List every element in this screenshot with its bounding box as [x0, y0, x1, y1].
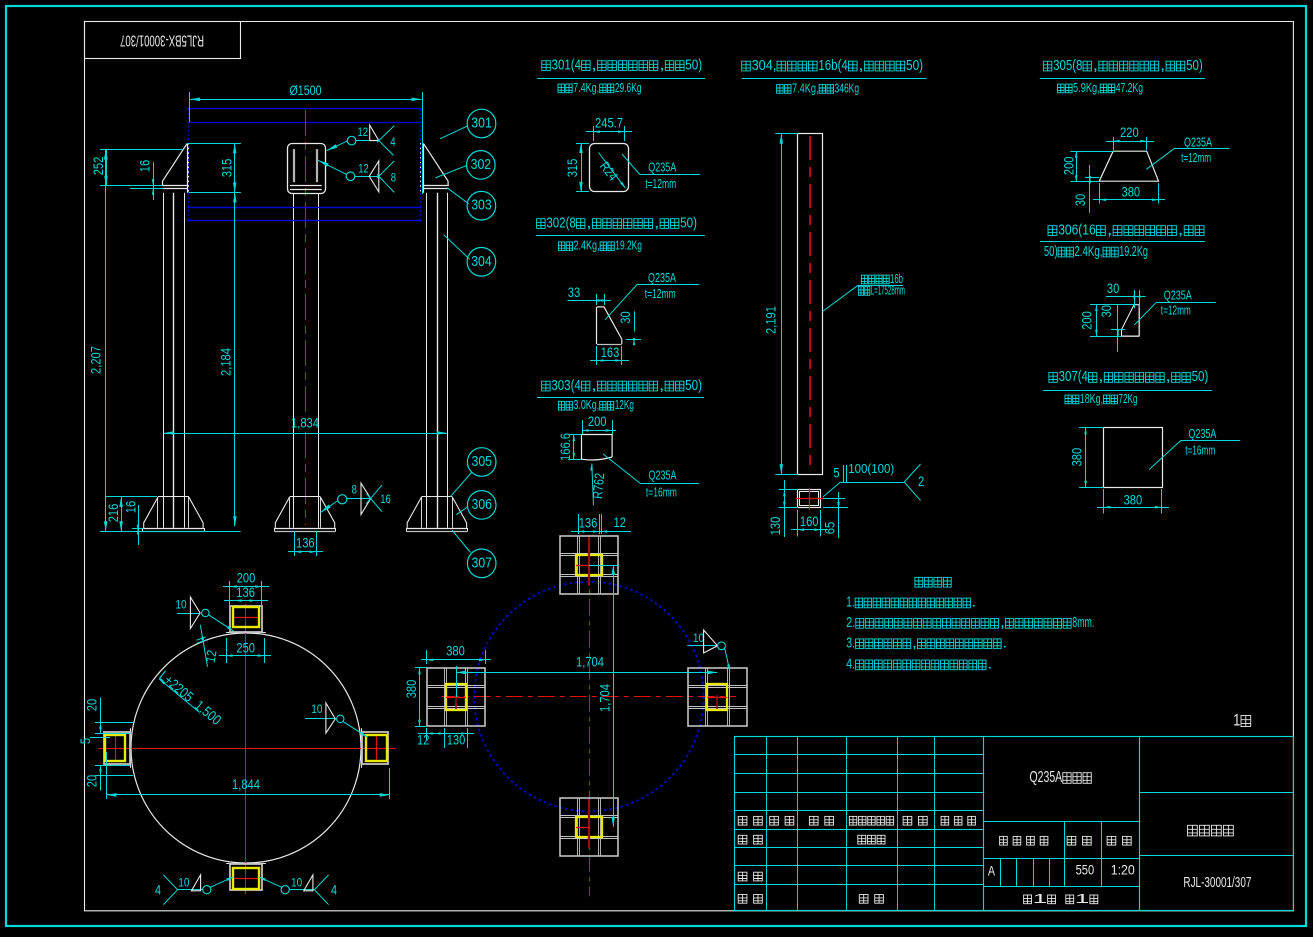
svg-text:t=16mm: t=16mm: [646, 484, 677, 499]
svg-text:4: 4: [390, 136, 396, 149]
svg-text:1,834: 1,834: [291, 416, 319, 431]
svg-text:100(100): 100(100): [848, 461, 894, 476]
svg-text:.: .: [1002, 636, 1007, 652]
svg-text:8: 8: [391, 172, 396, 185]
svg-text:304: 304: [471, 253, 492, 270]
svg-text:10: 10: [178, 876, 189, 890]
svg-text:Q235A: Q235A: [648, 270, 676, 285]
svg-text:12: 12: [358, 126, 369, 139]
svg-text:200: 200: [237, 571, 256, 586]
svg-text:16: 16: [124, 501, 139, 513]
svg-text:12: 12: [417, 732, 429, 747]
svg-text:220: 220: [1120, 125, 1139, 140]
svg-text:72Kg: 72Kg: [1118, 391, 1137, 406]
svg-text:,: ,: [1000, 615, 1005, 631]
svg-text:,: ,: [659, 57, 665, 73]
svg-text:1:20: 1:20: [1111, 863, 1135, 878]
svg-text:301(4: 301(4: [552, 57, 581, 73]
svg-text:2: 2: [918, 474, 924, 489]
svg-text:130: 130: [768, 516, 783, 535]
svg-text:t=16mm: t=16mm: [1185, 443, 1215, 458]
svg-text:303: 303: [471, 197, 492, 214]
svg-text:.: .: [987, 657, 992, 673]
svg-text:1,704: 1,704: [576, 654, 604, 669]
svg-text:50): 50): [685, 57, 702, 73]
svg-text:16: 16: [138, 160, 153, 172]
svg-text:130: 130: [447, 732, 466, 747]
svg-text:5: 5: [78, 738, 93, 744]
svg-text:Q235A: Q235A: [1164, 287, 1192, 302]
svg-text:10: 10: [693, 631, 704, 645]
svg-text:307: 307: [472, 554, 493, 571]
svg-text:305(8: 305(8: [1053, 58, 1082, 74]
svg-text:t=12mm: t=12mm: [1161, 303, 1191, 318]
svg-text:Q235A: Q235A: [1184, 134, 1212, 149]
svg-text:12: 12: [203, 649, 220, 664]
svg-text:315: 315: [220, 159, 235, 178]
svg-text:1: 1: [1033, 891, 1047, 906]
svg-text:305: 305: [472, 453, 493, 470]
svg-text:RJL-30001/307: RJL-30001/307: [1183, 875, 1251, 891]
svg-text:18Kg,: 18Kg,: [1080, 391, 1103, 406]
svg-text:Q235A: Q235A: [1030, 769, 1063, 786]
svg-text:2,207: 2,207: [89, 346, 104, 374]
svg-text:380: 380: [446, 644, 465, 659]
svg-text:,: ,: [586, 215, 592, 231]
svg-text:A: A: [988, 864, 996, 879]
svg-text:303(4: 303(4: [551, 378, 580, 394]
svg-text:4.: 4.: [846, 657, 855, 673]
svg-text:30: 30: [618, 311, 633, 324]
svg-text:250: 250: [236, 641, 255, 656]
svg-text:200: 200: [1062, 156, 1077, 175]
svg-text:301: 301: [471, 115, 492, 132]
svg-text:166.6: 166.6: [558, 433, 573, 461]
svg-text:302: 302: [471, 156, 492, 173]
svg-text:3.: 3.: [846, 636, 855, 652]
svg-text:1,844: 1,844: [232, 777, 260, 792]
svg-text:4: 4: [331, 883, 338, 898]
svg-text:136: 136: [236, 585, 255, 600]
svg-text:306(16: 306(16: [1058, 222, 1096, 238]
svg-text:,: ,: [1093, 58, 1099, 74]
svg-text:10: 10: [175, 598, 186, 612]
svg-text:50): 50): [680, 215, 697, 231]
svg-text:,: ,: [659, 378, 665, 394]
svg-text:136: 136: [296, 536, 315, 551]
svg-text:380: 380: [1124, 492, 1143, 507]
svg-text:2,191: 2,191: [764, 306, 779, 334]
svg-text:20: 20: [85, 774, 100, 787]
svg-text:R762: R762: [590, 472, 607, 499]
svg-text:30: 30: [1107, 281, 1120, 296]
svg-text:30: 30: [1073, 193, 1088, 206]
svg-text:200: 200: [1079, 311, 1094, 330]
svg-text:16: 16: [380, 493, 391, 506]
svg-text:163: 163: [601, 345, 620, 360]
svg-text:19.2Kg: 19.2Kg: [1119, 244, 1148, 260]
svg-text:,: ,: [858, 58, 864, 74]
svg-text:380: 380: [1070, 447, 1085, 466]
svg-text:8mm.: 8mm.: [1072, 615, 1094, 631]
svg-text:t=12mm: t=12mm: [645, 286, 676, 301]
svg-text:4: 4: [155, 883, 162, 898]
svg-text:,: ,: [591, 57, 597, 73]
svg-text:216: 216: [106, 504, 121, 523]
svg-text:,: ,: [1098, 369, 1104, 385]
svg-text:t=12mm: t=12mm: [645, 176, 676, 191]
svg-text:50): 50): [685, 378, 702, 394]
svg-text:346Kg: 346Kg: [835, 80, 860, 95]
svg-text:30: 30: [1099, 305, 1114, 318]
svg-text:Q235A: Q235A: [648, 160, 676, 175]
svg-text:252: 252: [91, 157, 106, 176]
svg-text:1: 1: [1075, 891, 1089, 906]
svg-text:L=17528mm: L=17528mm: [871, 282, 905, 297]
svg-text:,: ,: [654, 215, 660, 231]
svg-text:160: 160: [800, 514, 819, 529]
svg-text:2.: 2.: [846, 615, 855, 631]
svg-text:306: 306: [472, 496, 493, 513]
svg-text:,: ,: [1178, 222, 1184, 238]
svg-text:Q235A: Q235A: [649, 468, 677, 483]
svg-text:200: 200: [588, 414, 607, 429]
svg-text:136: 136: [579, 516, 598, 531]
svg-text:47.2Kg: 47.2Kg: [1116, 80, 1143, 95]
svg-text:7.4Kg,: 7.4Kg,: [792, 80, 819, 95]
svg-text:50): 50): [1192, 369, 1209, 385]
svg-text:1: 1: [1233, 711, 1240, 729]
svg-text:302(8: 302(8: [546, 215, 575, 231]
svg-text:3.0Kg,: 3.0Kg,: [573, 397, 599, 412]
svg-text:RJL5BX-30001/307: RJL5BX-30001/307: [120, 31, 204, 48]
svg-text:315: 315: [565, 159, 580, 178]
svg-text:1.: 1.: [846, 595, 854, 611]
svg-text:20: 20: [85, 698, 100, 711]
svg-text:12Kg: 12Kg: [615, 397, 634, 412]
svg-text:2.4Kg,: 2.4Kg,: [1074, 244, 1102, 260]
svg-text:307(4: 307(4: [1059, 369, 1088, 385]
svg-text:1,704: 1,704: [598, 684, 613, 712]
svg-text:t=12mm: t=12mm: [1181, 150, 1211, 165]
svg-text:50): 50): [906, 58, 923, 74]
svg-text:19.2Kg: 19.2Kg: [615, 238, 642, 253]
svg-text:2.4Kg,: 2.4Kg,: [574, 238, 600, 253]
svg-text:33: 33: [568, 285, 580, 300]
svg-text:10: 10: [311, 702, 322, 716]
svg-text:,: ,: [1107, 222, 1113, 238]
svg-text:380: 380: [404, 679, 419, 698]
svg-text:16b(4: 16b(4: [818, 58, 847, 74]
svg-text:,: ,: [591, 378, 597, 394]
svg-text:304,: 304,: [752, 58, 777, 74]
svg-text:65: 65: [823, 522, 838, 534]
svg-text:2,184: 2,184: [219, 348, 234, 376]
svg-text:7.4Kg,: 7.4Kg,: [573, 80, 599, 95]
svg-text:8: 8: [352, 484, 357, 497]
svg-text:Ø1500: Ø1500: [290, 83, 322, 98]
svg-text:29.6Kg: 29.6Kg: [615, 80, 642, 95]
svg-text:,: ,: [1165, 369, 1171, 385]
svg-text:,: ,: [912, 636, 917, 652]
svg-text:50): 50): [1186, 58, 1203, 74]
svg-text:50): 50): [1044, 244, 1058, 260]
svg-text:550: 550: [1076, 863, 1095, 878]
svg-text:.: .: [972, 595, 977, 611]
svg-text:380: 380: [1122, 185, 1141, 200]
svg-text:,: ,: [1160, 58, 1166, 74]
svg-text:10: 10: [291, 876, 302, 890]
svg-text:245.7: 245.7: [595, 116, 623, 131]
svg-text:12: 12: [614, 515, 626, 530]
svg-text:5: 5: [833, 466, 839, 481]
svg-text:12: 12: [358, 163, 369, 176]
svg-text:Q235A: Q235A: [1188, 426, 1216, 441]
svg-text:5.9Kg,: 5.9Kg,: [1073, 80, 1100, 95]
